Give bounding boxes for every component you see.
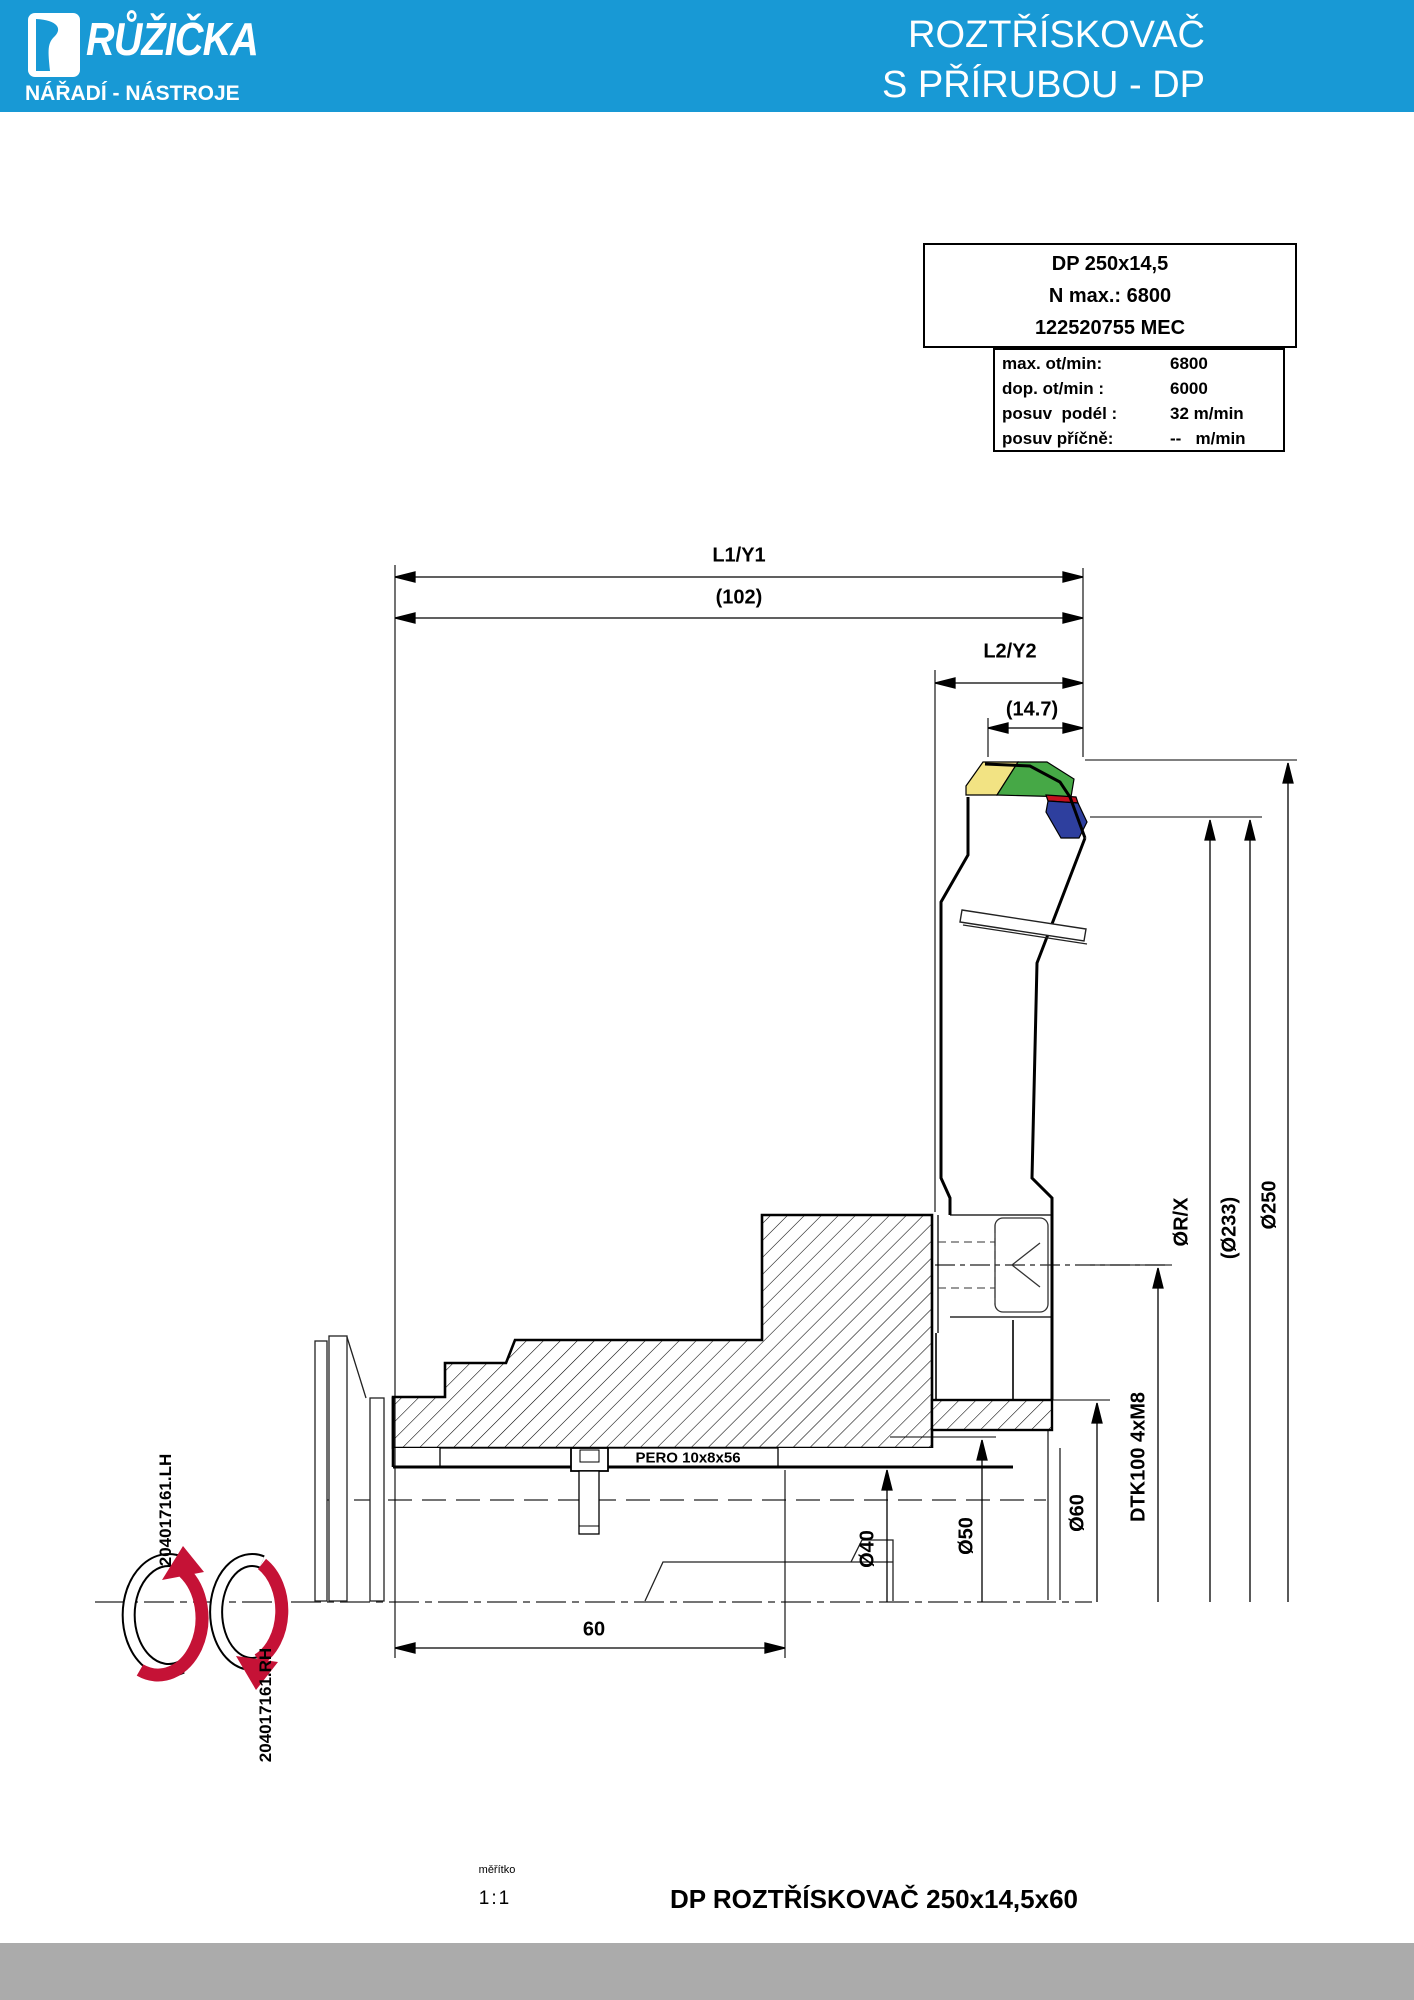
param-value: 6800 <box>1170 354 1208 374</box>
param-row: max. ot/min: 6800 <box>995 353 1283 378</box>
dim-bolt-circle: DTK100 4xM8 <box>1128 1392 1151 1522</box>
part-number-rh: 204017161.RH <box>256 1648 276 1762</box>
param-value: 6000 <box>1170 379 1208 399</box>
spec-code: 122520755 MEC <box>925 312 1295 344</box>
spec-nmax: N max.: 6800 <box>925 280 1295 312</box>
arbor-left-parts <box>315 1336 384 1601</box>
dim-l1-value: (102) <box>716 587 763 610</box>
hub-section <box>393 1215 932 1448</box>
dim-dia-rx: ØR/X <box>1171 1198 1194 1247</box>
tool-params-table: max. ot/min: 6800 dop. ot/min : 6000 pos… <box>993 348 1285 452</box>
dim-dia40: Ø40 <box>857 1530 880 1568</box>
insert-blue-segment <box>1046 801 1087 838</box>
part-number-lh: 204017161.LH <box>156 1454 176 1566</box>
drawing-title: DP ROZTŘÍSKOVAČ 250x14,5x60 <box>670 1884 1078 1915</box>
scale-label: měřítko <box>479 1864 516 1876</box>
tool-spec-box: DP 250x14,5 N max.: 6800 122520755 MEC <box>923 243 1297 348</box>
param-value: 32 m/min <box>1170 404 1244 424</box>
key-label: PERO 10x8x56 <box>635 1450 740 1467</box>
footer-bar <box>0 1943 1414 2000</box>
param-label: dop. ot/min : <box>1002 379 1104 399</box>
collar-section <box>932 1400 1052 1430</box>
dim-dia233: (Ø233) <box>1219 1197 1242 1259</box>
dim-l2-value: (14.7) <box>1006 699 1058 722</box>
dim-l1-label: L1/Y1 <box>712 545 765 568</box>
drawing-page: RŮŽIČKA NÁŘADÍ - NÁSTROJE ROZTŘÍSKOVAČ S… <box>0 0 1414 2000</box>
param-label: posuv podél : <box>1002 404 1117 424</box>
param-row: dop. ot/min : 6000 <box>995 378 1283 403</box>
dim-length60: 60 <box>583 1619 605 1642</box>
param-label: max. ot/min: <box>1002 354 1102 374</box>
dim-l2-label: L2/Y2 <box>983 641 1036 664</box>
extension-lines <box>395 565 1297 1658</box>
dim-dia250: Ø250 <box>1259 1181 1282 1230</box>
param-row: posuv příčně: -- m/min <box>995 428 1283 453</box>
dim-dia60: Ø60 <box>1067 1494 1090 1532</box>
dim-dia50: Ø50 <box>956 1517 979 1555</box>
param-value: -- m/min <box>1170 429 1246 449</box>
key-screw <box>571 1448 608 1534</box>
param-label: posuv příčně: <box>1002 429 1113 449</box>
spec-model: DP 250x14,5 <box>925 248 1295 280</box>
chip-limiter-bar <box>960 910 1087 944</box>
dimension-lines <box>395 572 1293 1653</box>
param-row: posuv podél : 32 m/min <box>995 403 1283 428</box>
cutting-insert <box>966 762 1087 838</box>
disc-body <box>936 797 1085 1400</box>
scale-value: 1:1 <box>479 1888 511 1910</box>
